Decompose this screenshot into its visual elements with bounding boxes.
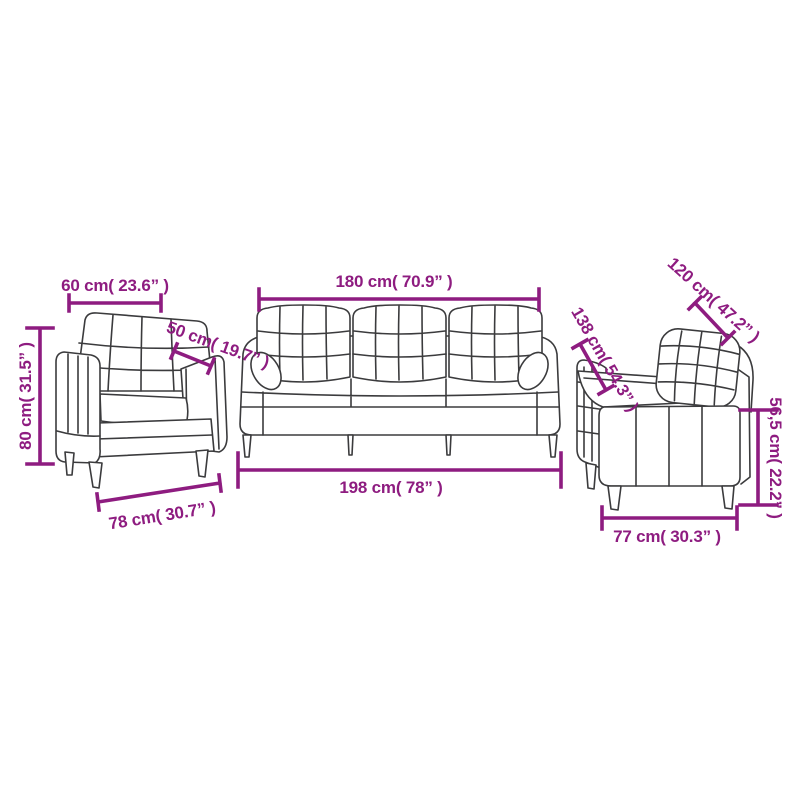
sofa3-width-label: 180 cm( 70.9” ) [335,272,452,291]
sofa2-depth-dimension: 77 cm( 30.3” ) [602,507,737,546]
sofa2-height-dimension: 56,5 cm( 22.2” ) [740,397,785,519]
armchair-seat [100,394,188,424]
sofa2-depth-line [602,507,737,529]
product-dimension-image: 60 cm( 23.6” ) 80 cm( 31.5” ) 50 cm( 19.… [0,0,800,800]
armchair-height-label: 80 cm( 31.5” ) [16,342,35,450]
armchair-height-dimension: 80 cm( 31.5” ) [16,328,53,464]
armchair-width-label: 60 cm( 23.6” ) [61,276,169,295]
three-seater-sofa-drawing [240,305,560,457]
sofa3-legs [243,435,557,457]
sofa3-base-dimension: 198 cm( 78” ) [238,453,561,497]
sofa2-height-label: 56,5 cm( 22.2” ) [766,397,785,519]
armchair-base-label: 78 cm( 30.7” ) [107,498,216,534]
sofa2-depth-label: 77 cm( 30.3” ) [613,527,721,546]
armchair-base-dimension: 78 cm( 30.7” ) [97,475,221,533]
armchair-width-dimension: 60 cm( 23.6” ) [61,276,169,311]
sofa3-base-label: 198 cm( 78” ) [339,478,442,497]
armchair-width-line [69,295,161,311]
